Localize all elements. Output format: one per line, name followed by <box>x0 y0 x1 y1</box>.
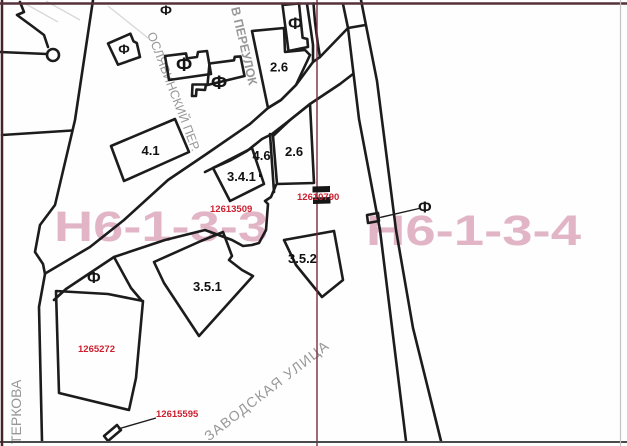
svg-text:Ф: Ф <box>87 270 101 287</box>
svg-text:Ф: Ф <box>211 73 227 94</box>
svg-text:2.6: 2.6 <box>285 144 303 159</box>
svg-text:12615595: 12615595 <box>156 409 199 420</box>
svg-text:3.5.2: 3.5.2 <box>288 251 317 266</box>
svg-text:1265272: 1265272 <box>78 344 115 355</box>
svg-text:Ф: Ф <box>176 55 192 76</box>
svg-text:Ф: Ф <box>418 200 432 217</box>
svg-text:Ф: Ф <box>288 14 303 33</box>
svg-text:4.1: 4.1 <box>142 143 160 158</box>
svg-text:3.4.1: 3.4.1 <box>227 169 256 184</box>
svg-text:2.6: 2.6 <box>270 60 288 75</box>
svg-text:ТЕРКОВА: ТЕРКОВА <box>8 379 24 444</box>
svg-text:3.5.1: 3.5.1 <box>193 279 222 294</box>
svg-text:12613509: 12613509 <box>210 204 252 215</box>
svg-text:12610790: 12610790 <box>297 192 339 203</box>
svg-text:Ф: Ф <box>118 42 130 57</box>
